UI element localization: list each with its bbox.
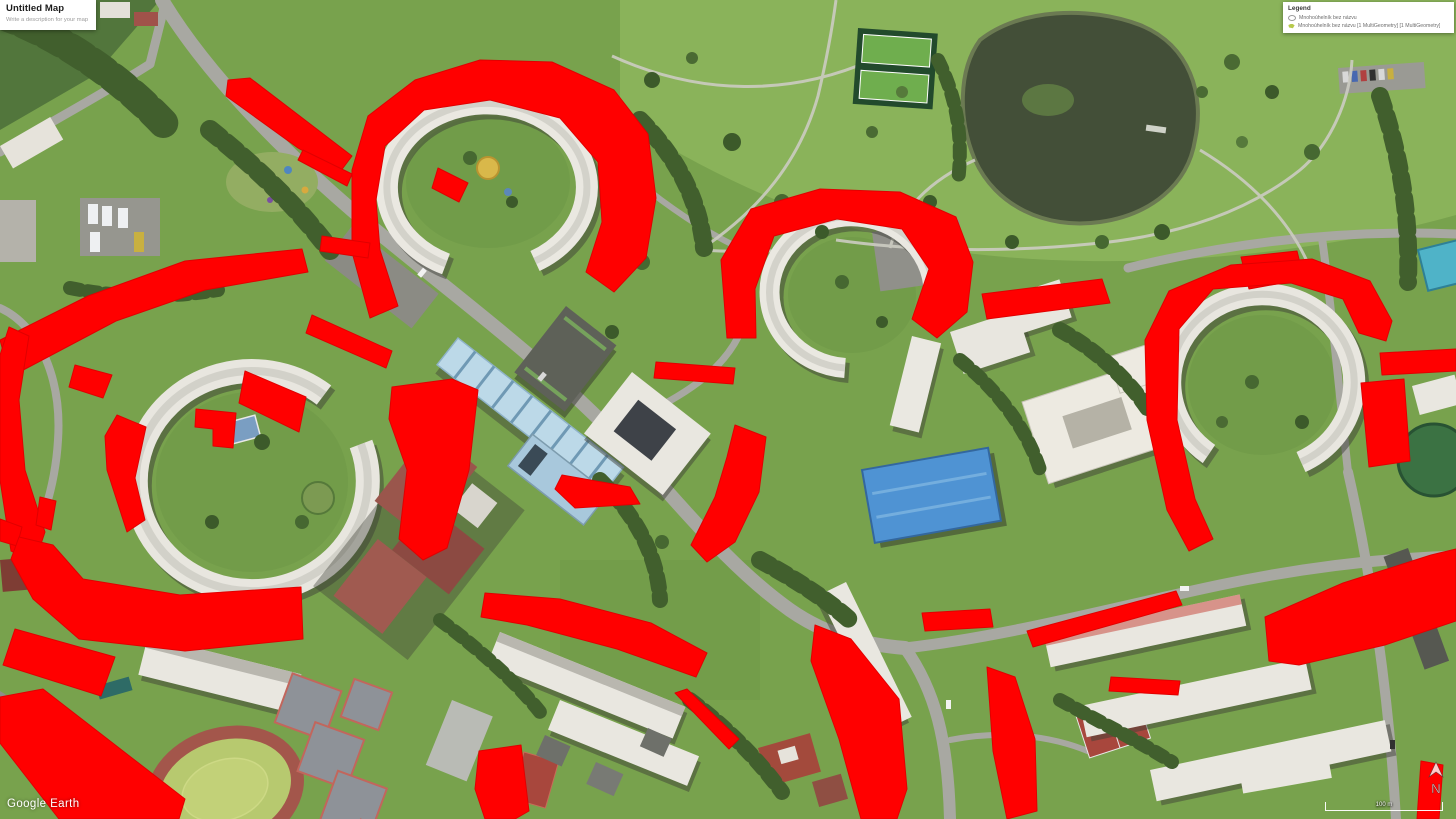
polygon-outline-icon (1288, 15, 1296, 21)
scale-bar: 100 m (1325, 802, 1443, 811)
google-earth-watermark: Google Earth (7, 798, 80, 810)
legend-item-label: Mnohoúhelník bez názvu (1299, 15, 1357, 21)
map-title-card: Untitled Map Write a description for you… (0, 0, 96, 30)
compass-north-arrow[interactable]: N (1426, 761, 1446, 803)
legend-title: Legend (1288, 5, 1449, 12)
map-description-placeholder[interactable]: Write a description for your map (6, 17, 90, 23)
map-annotation-polygon[interactable] (922, 609, 993, 631)
polygon-filled-icon (1288, 24, 1295, 29)
map-annotation-polygon[interactable] (475, 745, 529, 819)
scale-label: 100 m (1326, 801, 1442, 810)
map-annotation-polygon[interactable] (1361, 379, 1410, 467)
map-annotation-polygon[interactable] (1380, 349, 1456, 375)
compass-label: N (1431, 781, 1440, 796)
map-title[interactable]: Untitled Map (6, 4, 90, 15)
legend-item-label: Mnohoúhelník bez názvu [1 MultiGeometry]… (1298, 23, 1440, 29)
satellite-imagery (0, 0, 1456, 819)
legend-item[interactable]: Mnohoúhelník bez názvu (1288, 15, 1449, 21)
north-arrow-icon (1429, 762, 1443, 777)
legend-item[interactable]: Mnohoúhelník bez názvu [1 MultiGeometry]… (1288, 23, 1449, 29)
sports-courts (853, 28, 938, 109)
legend-items: Mnohoúhelník bez názvuMnohoúhelník bez n… (1288, 15, 1449, 30)
legend-card: Legend Mnohoúhelník bez názvuMnohoúhelní… (1283, 2, 1454, 33)
map-canvas[interactable] (0, 0, 1456, 819)
